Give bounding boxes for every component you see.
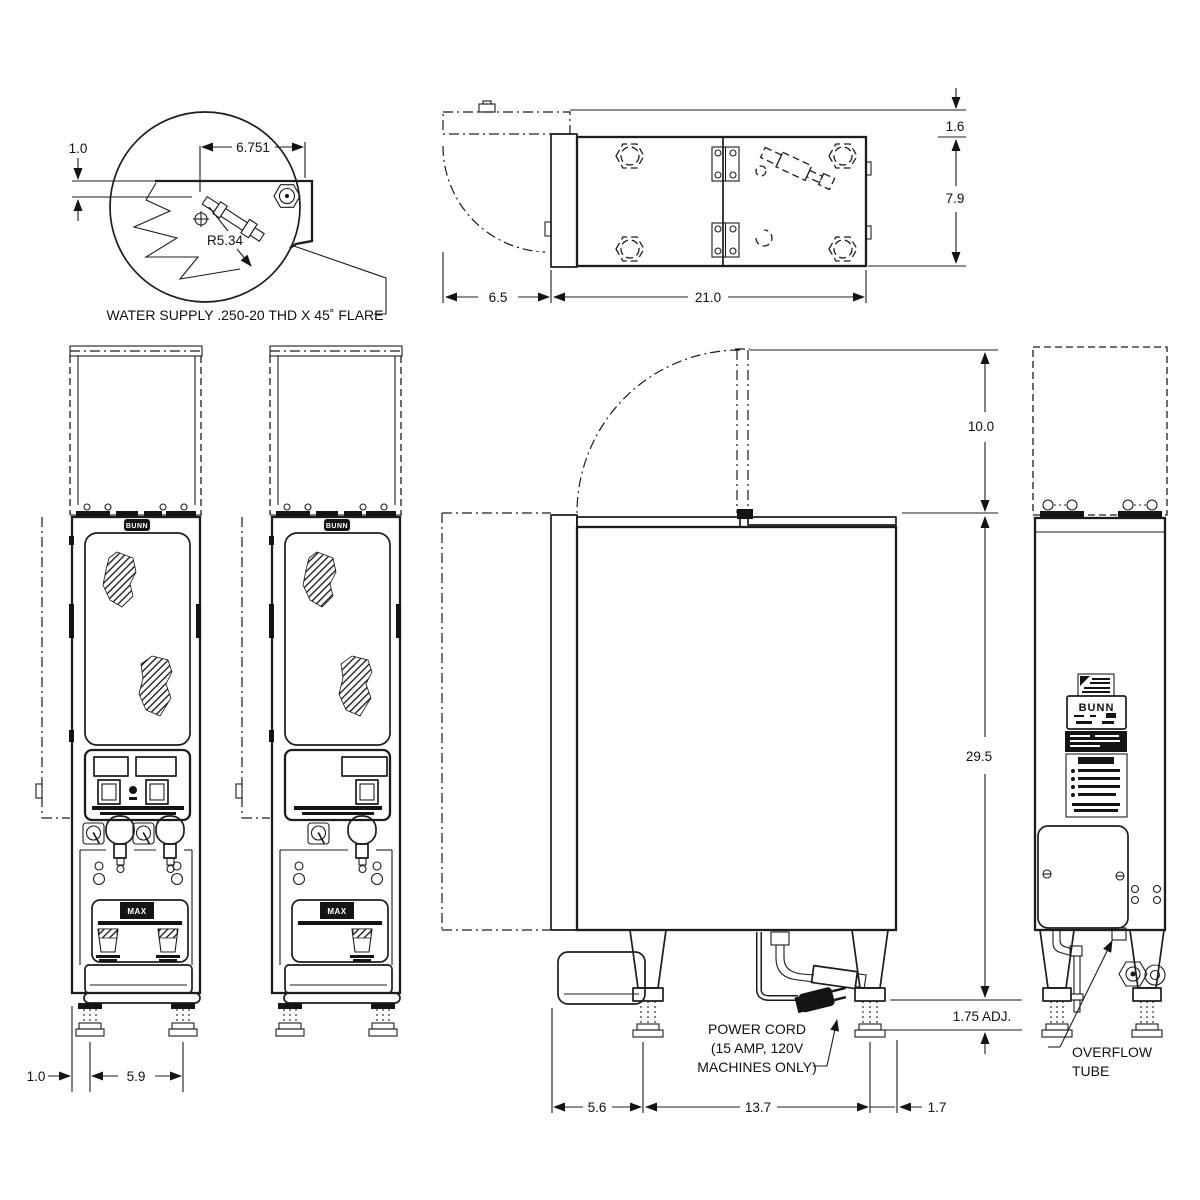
display-window	[94, 757, 128, 776]
dim-door-depth-label: 6.5	[489, 290, 508, 305]
dim-lid-open-label: 10.0	[968, 419, 994, 434]
hopper-lids	[616, 144, 857, 261]
water-supply-callout: WATER SUPPLY .250-20 THD X 45˚ FLARE	[107, 307, 384, 323]
lid-hinges	[712, 147, 739, 257]
dim-body-width-label: 21.0	[695, 290, 721, 305]
power-plug	[794, 983, 849, 1014]
faucet-stowed	[760, 145, 836, 192]
access-panel	[1038, 826, 1128, 928]
dim-leg-spacing-label: 5.9	[127, 1069, 146, 1084]
front-view-single: BUNN MAX	[236, 346, 402, 1036]
detail-view-water-supply: 1.0 6.751 R5.34 WATER SUPPLY .250-20 THD…	[69, 112, 386, 323]
top-view: 1.6 7.9 6.5 21.0	[443, 88, 966, 305]
dim-body-height-label: 29.5	[966, 749, 992, 764]
brand-badge-text: BUNN	[326, 523, 348, 530]
detail-circle	[110, 112, 300, 302]
max-fill-text: MAX	[127, 907, 146, 916]
display-window	[136, 757, 176, 776]
control-panel	[285, 750, 390, 820]
splash-graphic	[303, 552, 336, 607]
label-stack: BUNN	[1065, 674, 1127, 817]
door-profile	[551, 515, 577, 930]
overflow-note-line1: OVERFLOW	[1072, 1044, 1153, 1060]
brand-badge-text: BUNN	[126, 523, 148, 530]
splash-graphic	[139, 656, 172, 716]
dim-front-inset-label: 5.6	[588, 1100, 607, 1115]
power-cord-note-line1: POWER CORD	[708, 1021, 806, 1037]
lid-swing-arc	[577, 350, 740, 513]
dim-rear-inset-label: 1.7	[928, 1100, 947, 1115]
dispense-area	[280, 816, 392, 965]
top-view-body	[577, 137, 866, 266]
lower-door: MAX	[292, 900, 388, 962]
power-cord-note-line2: (15 AMP, 120V	[711, 1040, 804, 1056]
side-view: 10.0 29.5 1.75 ADJ. 5.6 13.7 1.7 POWER C…	[442, 349, 1022, 1115]
technical-drawing: 1.0 6.751 R5.34 WATER SUPPLY .250-20 THD…	[0, 0, 1200, 1200]
indicator-lamp	[129, 786, 137, 794]
control-panel	[85, 750, 190, 820]
power-cord-note-line3: MACHINES ONLY)	[697, 1059, 817, 1075]
radius-label: R5.34	[207, 233, 244, 248]
dim-offset-label: 1.0	[69, 141, 88, 156]
front-view-dual: BUNN	[27, 346, 202, 1092]
open-door-outline	[443, 112, 570, 134]
dim-depth-label: 7.9	[946, 191, 965, 206]
brand-label-text: BUNN	[1079, 702, 1115, 714]
dim-left-offset-label: 1.0	[27, 1069, 46, 1084]
splash-graphic	[339, 656, 372, 716]
dispense-area	[80, 816, 192, 965]
side-body	[577, 527, 896, 930]
display-window	[342, 757, 387, 776]
drip-tray	[558, 952, 645, 1004]
hopper-phantom	[1033, 347, 1167, 515]
rear-view: BUNN	[1033, 347, 1167, 1079]
merchandiser-door	[85, 533, 190, 745]
front-door-edge	[551, 134, 577, 267]
dimensional-drawing-page: 1.0 6.751 R5.34 WATER SUPPLY .250-20 THD…	[0, 0, 1200, 1200]
splash-graphic	[103, 552, 136, 607]
rear-body	[1035, 518, 1165, 930]
dim-lid-gap-label: 1.6	[946, 119, 965, 134]
door-swing-arc	[443, 146, 545, 252]
merchandiser-door	[285, 533, 390, 745]
dim-leg-span-label: 13.7	[745, 1100, 771, 1115]
lid-hinge	[737, 509, 753, 519]
dim-width-label: 6.751	[236, 140, 270, 155]
dim-leg-adjust-label: 1.75 ADJ.	[953, 1009, 1012, 1024]
lower-door: MAX	[92, 900, 188, 962]
max-fill-text: MAX	[327, 907, 346, 916]
overflow-note-line2: TUBE	[1072, 1063, 1109, 1079]
